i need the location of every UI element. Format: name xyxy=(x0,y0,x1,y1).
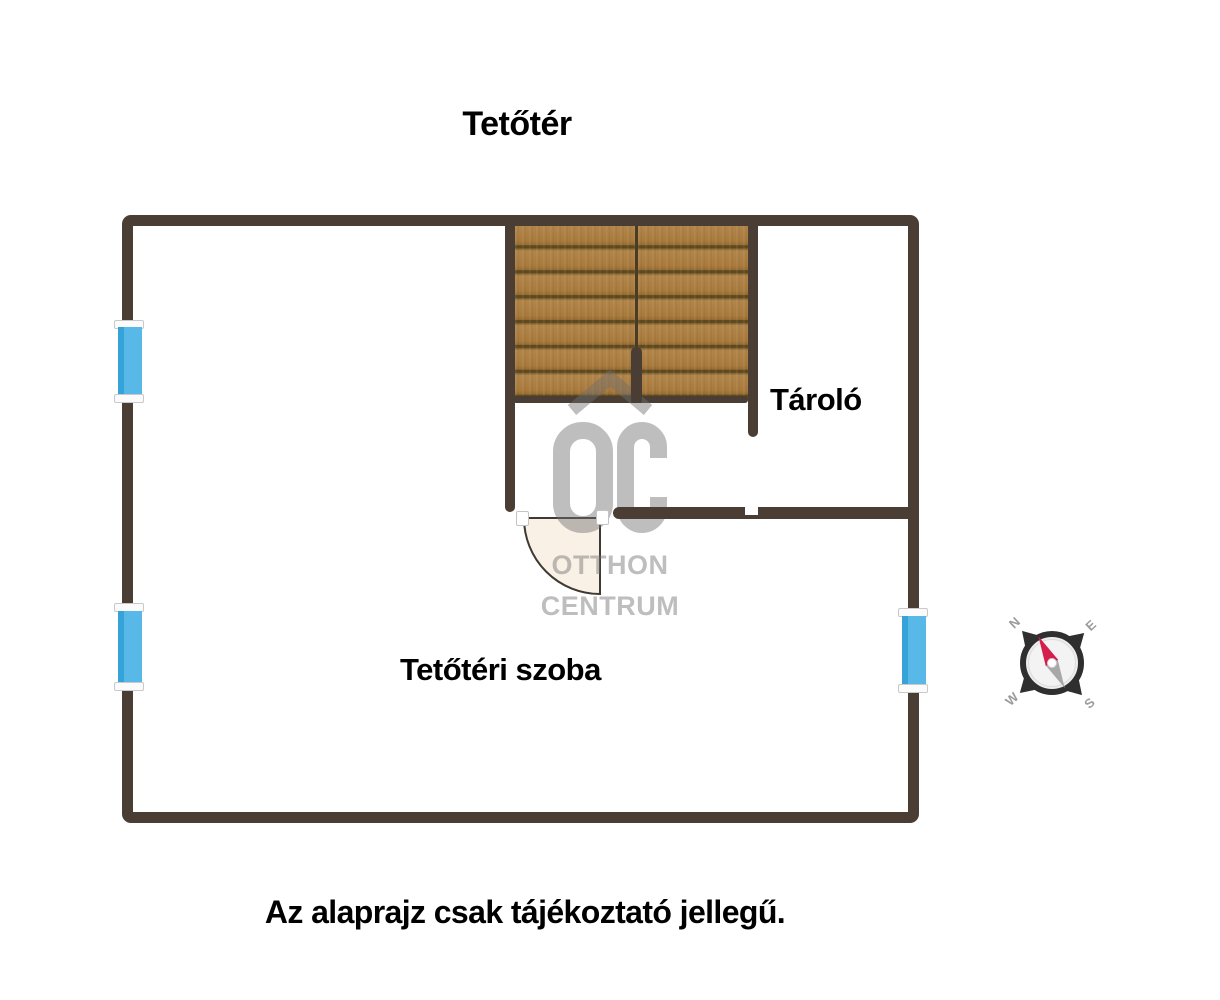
interior-wall xyxy=(613,507,919,519)
door-jamb-right xyxy=(596,510,609,525)
compass-icon: N E S W xyxy=(992,599,1112,727)
stair-right-wall xyxy=(748,226,758,437)
stair-left-wall xyxy=(505,226,515,512)
compass-n: N xyxy=(1006,614,1023,631)
compass-w: W xyxy=(1002,689,1022,709)
window2-sill-bottom xyxy=(114,682,144,691)
door-jamb-left xyxy=(516,511,529,526)
storage-door-notch xyxy=(745,507,758,515)
compass-s: S xyxy=(1081,695,1098,712)
divider-stub-wall xyxy=(631,347,642,403)
room-label-attic-room: Tetőtéri szoba xyxy=(400,652,601,688)
window3-glass xyxy=(902,616,926,686)
floor-plan: Tetőtér OTTHON CENTRUM Tároló Tetőtéri s… xyxy=(0,0,1220,1000)
window1-sill-bottom xyxy=(114,394,144,403)
compass-e: E xyxy=(1082,617,1099,634)
disclaimer-text: Az alaprajz csak tájékoztató jellegű. xyxy=(145,894,905,931)
window2-glass xyxy=(118,611,142,684)
room-label-storage: Tároló xyxy=(770,382,862,418)
window1-glass xyxy=(118,327,142,396)
floor-title: Tetőtér xyxy=(397,105,637,144)
window3-sill-bottom xyxy=(898,684,928,693)
